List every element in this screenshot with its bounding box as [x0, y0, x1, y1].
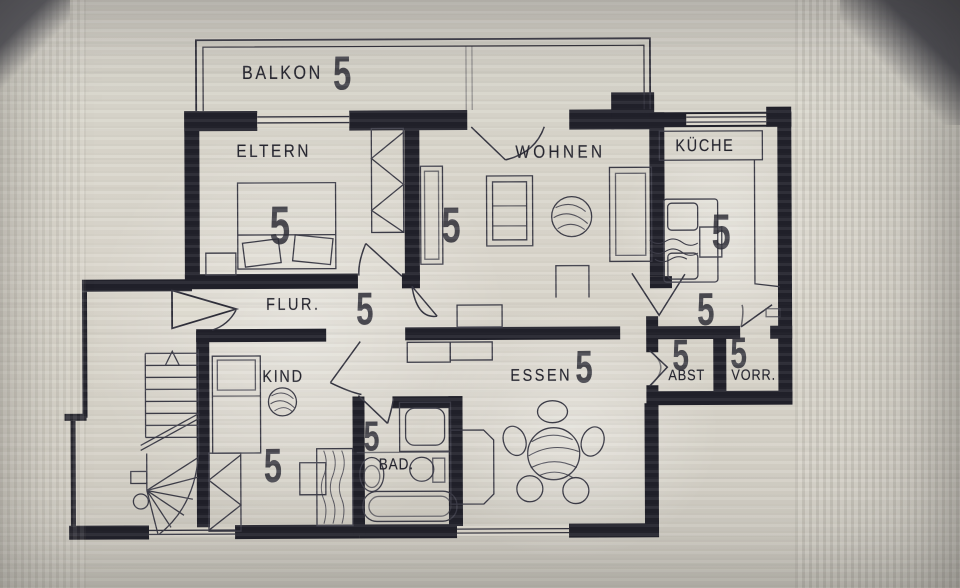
stairs [130, 349, 200, 534]
mark-flur: 5 [356, 281, 374, 335]
mark-balkon: 5 [333, 47, 351, 102]
label-kind: KIND [262, 367, 303, 387]
mark-vorr: 5 [730, 329, 747, 379]
label-kueche: KÜCHE [675, 136, 734, 156]
label-wohnen: WOHNEN [515, 141, 605, 162]
mark-essen: 5 [575, 340, 593, 394]
mark-wohnen: 5 [442, 196, 461, 254]
mark-kind: 5 [264, 439, 282, 494]
label-essen: ESSEN [510, 366, 572, 386]
label-eltern: ELTERN [236, 141, 311, 162]
floorplan-linework [0, 0, 960, 588]
label-bad: BAD. [379, 456, 414, 474]
mark-kueche-upper: 5 [712, 203, 731, 261]
floorplan-photo: BALKON ELTERN WOHNEN KÜCHE FLUR. KIND BA… [0, 0, 960, 588]
label-flur: FLUR. [266, 295, 321, 315]
mark-bad: 5 [364, 412, 380, 460]
mark-abst: 5 [672, 331, 689, 381]
mark-kueche-lower: 5 [697, 282, 715, 336]
label-balkon: BALKON [242, 63, 323, 85]
floorplan-drawing: BALKON ELTERN WOHNEN KÜCHE FLUR. KIND BA… [0, 0, 960, 588]
mark-eltern: 5 [270, 195, 291, 257]
